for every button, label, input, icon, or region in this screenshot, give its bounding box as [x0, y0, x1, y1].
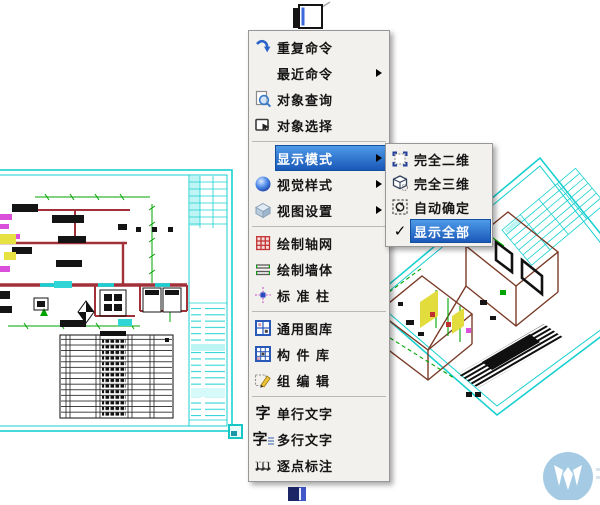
visual-style-sphere-icon: [249, 175, 277, 193]
group-edit-icon: [249, 371, 277, 389]
submenu-item-full-2d[interactable]: 完全二维: [386, 147, 492, 171]
submenu-arrow-icon: [376, 180, 382, 188]
submenu-item-label: 显示全部: [414, 222, 492, 241]
object-query-icon: [249, 90, 277, 108]
context-menu: 重复命令 最近命令 对象查询 对象选择 显示模式 视觉样式 视图: [248, 30, 390, 482]
menu-item-label: 通用图库: [277, 319, 389, 338]
schedule-table: [60, 331, 173, 418]
menu-item-label: 对象选择: [277, 116, 389, 135]
dimension-annotate-icon: [249, 456, 277, 474]
menu-item-recent-commands[interactable]: 最近命令: [249, 60, 389, 86]
menu-item-draw-wall[interactable]: 绘制墙体: [249, 256, 389, 282]
menu-item-label: 视图设置: [277, 201, 376, 220]
menu-item-label: 对象查询: [277, 90, 389, 109]
cad-application-canvas: { "context_menu": { "items": [ {"label":…: [0, 0, 600, 500]
menu-item-label: 构 件 库: [277, 345, 389, 364]
menu-item-object-select[interactable]: 对象选择: [249, 112, 389, 138]
menu-item-component-library[interactable]: 构 件 库: [249, 341, 389, 367]
menu-item-repeat-command[interactable]: 重复命令: [249, 34, 389, 60]
display-mode-submenu: 完全二维 完全三维 自动确定 ✓ 显示全部: [385, 143, 493, 247]
menu-item-standard-column[interactable]: 标 准 柱: [249, 282, 389, 308]
menu-item-label: 单行文字: [277, 404, 389, 423]
2d-plan-svg: [0, 148, 234, 440]
menu-item-object-query[interactable]: 对象查询: [249, 86, 389, 112]
menu-item-view-settings[interactable]: 视图设置: [249, 197, 389, 223]
menu-item-point-dimension[interactable]: 逐点标注: [249, 452, 389, 478]
menu-separator: [252, 141, 386, 142]
menu-item-visual-style[interactable]: 视觉样式: [249, 171, 389, 197]
menu-item-label: 标 准 柱: [277, 286, 389, 305]
full-2d-icon: [386, 150, 414, 168]
menu-item-label: 重复命令: [277, 38, 389, 57]
check-mark-icon: ✓: [386, 222, 414, 240]
object-select-icon: [249, 116, 277, 134]
slanted-title-table: [502, 168, 600, 265]
toolbar-icon-partial[interactable]: [286, 486, 308, 505]
draw-axis-grid-icon: [249, 234, 277, 252]
draw-wall-icon: [249, 260, 277, 278]
toolbar-icon-partial-glyph: [286, 487, 308, 501]
auto-determine-icon: [386, 198, 414, 216]
menu-item-label: 组 编 辑: [277, 371, 389, 390]
submenu-item-show-all[interactable]: ✓ 显示全部: [386, 219, 492, 243]
submenu-item-auto-determine[interactable]: 自动确定: [386, 195, 492, 219]
window-object-tool-glyph: [290, 1, 334, 30]
submenu-item-full-3d[interactable]: 完全三维: [386, 171, 492, 195]
menu-item-label: 显示模式: [277, 149, 376, 168]
menu-separator: [252, 311, 386, 312]
view-settings-box-icon: [249, 201, 277, 219]
submenu-arrow-icon: [376, 154, 382, 162]
general-library-icon: [249, 319, 277, 337]
full-3d-icon: [386, 174, 414, 192]
menu-item-label: 最近命令: [277, 64, 376, 83]
menu-separator: [252, 396, 386, 397]
menu-separator: [252, 226, 386, 227]
submenu-arrow-icon: [376, 206, 382, 214]
north-compass-icon: [78, 301, 94, 323]
menu-item-display-mode[interactable]: 显示模式: [249, 145, 389, 171]
component-library-icon: [249, 345, 277, 363]
menu-item-general-library[interactable]: 通用图库: [249, 315, 389, 341]
menu-item-single-line-text[interactable]: 字 单行文字: [249, 400, 389, 426]
menu-item-label: 绘制轴网: [277, 234, 389, 253]
submenu-item-label: 完全三维: [414, 174, 492, 193]
multi-line-text-icon: 字: [249, 432, 277, 447]
submenu-item-label: 自动确定: [414, 198, 492, 217]
2d-floor-plan-drawing[interactable]: [0, 148, 234, 444]
submenu-item-label: 完全二维: [414, 150, 492, 169]
menu-item-label: 逐点标注: [277, 456, 389, 475]
menu-item-group-edit[interactable]: 组 编 辑: [249, 367, 389, 393]
menu-item-label: 多行文字: [277, 430, 389, 449]
submenu-arrow-icon: [376, 69, 382, 77]
standard-column-icon: [249, 286, 277, 304]
title-block: [189, 176, 227, 420]
frame-corner-marker: [228, 424, 243, 439]
single-line-text-icon: 字: [249, 406, 277, 421]
cyan-accents: [54, 281, 132, 326]
repeat-command-icon: [249, 38, 277, 56]
menu-item-label: 视觉样式: [277, 175, 376, 194]
menu-item-draw-axis-grid[interactable]: 绘制轴网: [249, 230, 389, 256]
menu-item-label: 绘制墙体: [277, 260, 389, 279]
menu-item-multi-line-text[interactable]: 字 多行文字: [249, 426, 389, 452]
